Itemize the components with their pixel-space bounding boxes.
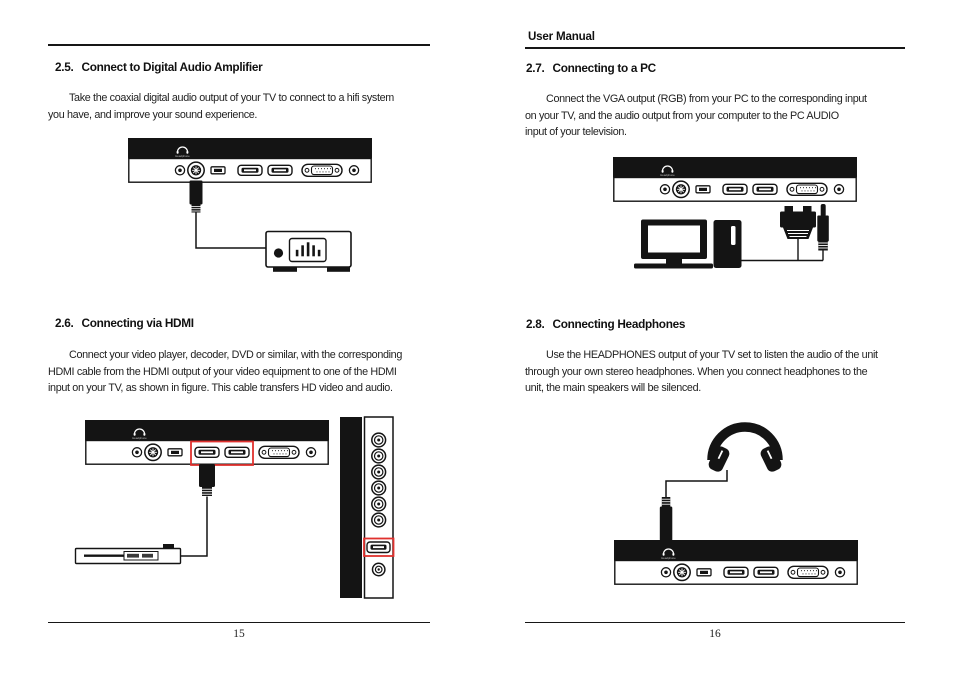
paragraph-line: through your own stereo headphones. When… — [525, 364, 878, 381]
section-title: Connecting via HDMI — [81, 316, 193, 330]
bottom-rule — [525, 622, 905, 624]
section-2-5-paragraph: Take the coaxial digital audio output of… — [48, 90, 394, 123]
figure-pc-connection — [611, 155, 859, 273]
paragraph-line: input of your television. — [525, 124, 867, 141]
section-title: Connect to Digital Audio Amplifier — [81, 60, 262, 74]
hdmi-cable — [181, 497, 208, 557]
section-heading-2-8: 2.8. Connecting Headphones — [525, 317, 685, 331]
page-15: 2.5. Connect to Digital Audio Amplifier … — [48, 0, 430, 674]
side-antenna-jack — [373, 563, 385, 575]
section-heading-2-5: 2.5. Connect to Digital Audio Amplifier — [48, 60, 262, 74]
section-2-7-paragraph: Connect the VGA output (RGB) from your P… — [525, 91, 867, 141]
page-number: 15 — [48, 628, 430, 640]
headphone-cable — [666, 470, 727, 497]
pc-cables — [742, 239, 824, 261]
coaxial-plug — [190, 181, 203, 213]
paragraph-line: unit, the main speakers will be silenced… — [525, 380, 878, 397]
figure-digital-audio-amplifier — [126, 136, 376, 276]
section-heading-2-6: 2.6. Connecting via HDMI — [48, 316, 194, 330]
page-number: 16 — [525, 628, 905, 640]
section-2-6-paragraph: Connect your video player, decoder, DVD … — [48, 347, 402, 397]
headphone-plug — [660, 497, 673, 541]
top-rule — [48, 44, 430, 46]
paragraph-line: you have, and improve your sound experie… — [48, 107, 394, 124]
dvd-player — [76, 544, 181, 564]
hdmi-cable-plug — [199, 464, 215, 496]
audio-plug — [817, 204, 829, 251]
section-heading-2-7: 2.7. Connecting to a PC — [525, 61, 656, 75]
section-number: 2.5. — [55, 60, 73, 74]
user-manual-spread: { "colors": { "ink": "#161616", "highlig… — [0, 0, 954, 674]
tv-rear-panel — [613, 157, 857, 201]
running-header: User Manual — [528, 30, 595, 43]
paragraph-line: on your TV, and the audio output from yo… — [525, 108, 867, 125]
paragraph-line: input on your TV, as shown in figure. Th… — [48, 380, 402, 397]
paragraph-line: Connect your video player, decoder, DVD … — [48, 347, 402, 364]
bottom-rule — [48, 622, 430, 624]
section-title: Connecting to a PC — [552, 61, 655, 75]
volume-knob — [274, 248, 283, 257]
tv-rear-panel — [614, 540, 858, 584]
tv-side-panel — [340, 417, 394, 598]
section-number: 2.8. — [526, 317, 544, 331]
side-hdmi-port — [367, 542, 390, 553]
tv-rear-panel — [128, 138, 372, 182]
amplifier — [266, 232, 351, 272]
paragraph-line: HDMI cable from the HDMI output of your … — [48, 364, 402, 381]
figure-headphones-connection — [608, 413, 860, 589]
paragraph-line: Use the HEADPHONES output of your TV set… — [525, 347, 878, 364]
headphones — [707, 427, 783, 474]
figure-hdmi-connection — [73, 415, 395, 603]
paragraph-line: Connect the VGA output (RGB) from your P… — [525, 91, 867, 108]
audio-cable — [196, 213, 266, 249]
section-2-8-paragraph: Use the HEADPHONES output of your TV set… — [525, 347, 878, 397]
paragraph-line: Take the coaxial digital audio output of… — [48, 90, 394, 107]
page-16: User Manual 2.7. Connecting to a PC Conn… — [525, 0, 905, 674]
pc-tower — [714, 220, 742, 268]
section-title: Connecting Headphones — [552, 317, 685, 331]
top-rule — [525, 47, 905, 49]
section-number: 2.7. — [526, 61, 544, 75]
section-number: 2.6. — [55, 316, 73, 330]
vga-connector — [780, 206, 816, 239]
pc-monitor — [634, 220, 713, 269]
